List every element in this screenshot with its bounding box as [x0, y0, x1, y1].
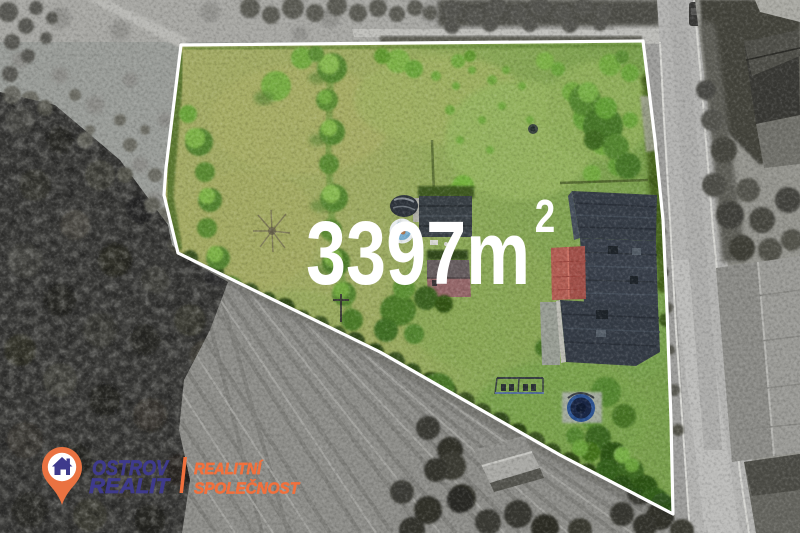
- svg-text:REALITNÍ: REALITNÍ: [194, 459, 263, 478]
- svg-text:REALIT: REALIT: [89, 475, 171, 498]
- svg-text:3397m: 3397m: [306, 203, 530, 303]
- svg-text:2: 2: [535, 190, 555, 242]
- svg-text:SPOLEČNOST: SPOLEČNOST: [194, 479, 300, 498]
